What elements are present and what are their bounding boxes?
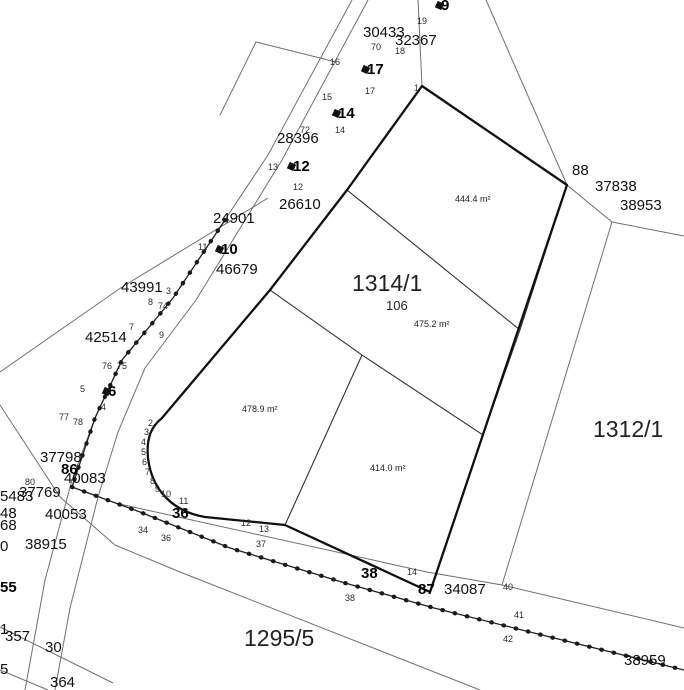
map-label-survey-46679: 46679 — [216, 262, 258, 277]
map-label-bold-87: 87 — [418, 582, 435, 597]
map-label-point-11: 11 — [198, 243, 207, 252]
map-label-survey-38953: 38953 — [620, 198, 662, 213]
map-label-survey-364: 364 — [50, 675, 75, 690]
map-label-point-75: 75 — [117, 362, 127, 371]
map-label-bold-9: 9 — [441, 0, 449, 13]
map-label-point-78: 78 — [73, 418, 83, 427]
map-label-point-40: 40 — [503, 583, 513, 592]
map-label-survey-24901: 24901 — [213, 211, 255, 226]
map-label-point-18: 18 — [395, 47, 405, 56]
map-label-point-9: 9 — [159, 331, 164, 340]
parcel-label-1314-1: 1314/1 — [352, 272, 422, 295]
map-label-point-77: 77 — [59, 413, 69, 422]
map-label-point-19: 19 — [417, 17, 427, 26]
map-label-survey-37838: 37838 — [595, 179, 637, 194]
parcel-label-1312-1: 1312/1 — [593, 418, 663, 441]
map-label-survey-68: 68 — [0, 518, 17, 533]
map-labels: 1314/11312/11295/5106444.4 m²475.2 m²478… — [0, 0, 684, 690]
map-label-point-4: 4 — [141, 438, 146, 447]
map-label-point-5: 5 — [141, 448, 146, 457]
map-label-point-5: 5 — [80, 385, 85, 394]
map-label-point-1: 1 — [414, 84, 419, 93]
map-label-bold-55: 55 — [0, 580, 17, 595]
map-label-survey-1: 1 — [0, 622, 8, 637]
map-label-point-70: 70 — [371, 43, 381, 52]
map-label-point-80: 80 — [25, 478, 35, 487]
map-label-survey-357: 357 — [5, 629, 30, 644]
map-label-point-9: 9 — [155, 485, 160, 494]
parcel-label-1295-5: 1295/5 — [244, 627, 314, 650]
map-label-point-13: 13 — [259, 525, 269, 534]
map-label-point-10: 10 — [161, 490, 171, 499]
map-label-survey-38959: 38959 — [624, 653, 666, 668]
map-label-survey-30: 30 — [45, 640, 62, 655]
map-label-point-41: 41 — [514, 611, 524, 620]
map-label-point-38: 38 — [345, 594, 355, 603]
map-label-bold-86: 86 — [61, 462, 78, 477]
map-label-survey-34087: 34087 — [444, 582, 486, 597]
map-label-point-7: 7 — [129, 323, 134, 332]
map-label-point-3: 3 — [144, 428, 149, 437]
map-label-point-74: 74 — [158, 302, 168, 311]
map-label-survey-0: 0 — [0, 539, 8, 554]
map-label-point-76: 76 — [102, 362, 112, 371]
map-label-point-8: 8 — [148, 298, 153, 307]
map-label-bold-14: 14 — [338, 106, 355, 121]
map-label-survey-42514: 42514 — [85, 330, 127, 345]
map-label-survey-5483: 5483 — [0, 489, 33, 504]
map-label-bold-12: 12 — [293, 159, 310, 174]
cadastral-map: 1314/11312/11295/5106444.4 m²475.2 m²478… — [0, 0, 684, 690]
map-label-survey-5: 5 — [0, 662, 8, 677]
map-label-point-4: 4 — [101, 403, 106, 412]
area-label-green: 414.0 m² — [370, 464, 406, 473]
map-label-point-3: 3 — [166, 287, 171, 296]
map-label-point-72: 72 — [300, 126, 310, 135]
parcel-sublabel-106: 106 — [386, 299, 408, 312]
map-label-point-12: 12 — [241, 519, 251, 528]
map-label-point-11: 11 — [179, 497, 188, 506]
map-label-point-16: 16 — [330, 58, 340, 67]
map-label-point-37: 37 — [256, 540, 266, 549]
map-label-survey-40053: 40053 — [45, 507, 87, 522]
area-label-cyan: 444.4 m² — [455, 195, 491, 204]
area-label-pink: 475.2 m² — [414, 320, 450, 329]
map-label-bold-38: 38 — [361, 566, 378, 581]
map-label-bold-6: 6 — [108, 384, 116, 399]
map-label-bold-17: 17 — [367, 62, 384, 77]
map-label-point-13: 13 — [268, 163, 278, 172]
map-label-survey-88: 88 — [572, 163, 589, 178]
map-label-survey-38915: 38915 — [25, 537, 67, 552]
map-label-point-15: 15 — [322, 93, 332, 102]
map-label-point-36: 36 — [161, 534, 171, 543]
map-label-point-14: 14 — [407, 568, 417, 577]
map-label-bold-10: 10 — [221, 242, 238, 257]
map-label-point-42: 42 — [503, 635, 513, 644]
map-label-bold-36: 36 — [172, 506, 189, 521]
area-label-yellow: 478.9 m² — [242, 405, 278, 414]
map-label-point-34: 34 — [138, 526, 148, 535]
map-label-point-6: 6 — [142, 458, 147, 467]
map-label-survey-26610: 26610 — [279, 197, 321, 212]
map-label-survey-43991: 43991 — [121, 280, 163, 295]
map-label-point-14: 14 — [335, 126, 345, 135]
map-label-point-17: 17 — [365, 87, 375, 96]
map-label-point-12: 12 — [293, 183, 303, 192]
map-label-survey-28396: 28396 — [277, 131, 319, 146]
